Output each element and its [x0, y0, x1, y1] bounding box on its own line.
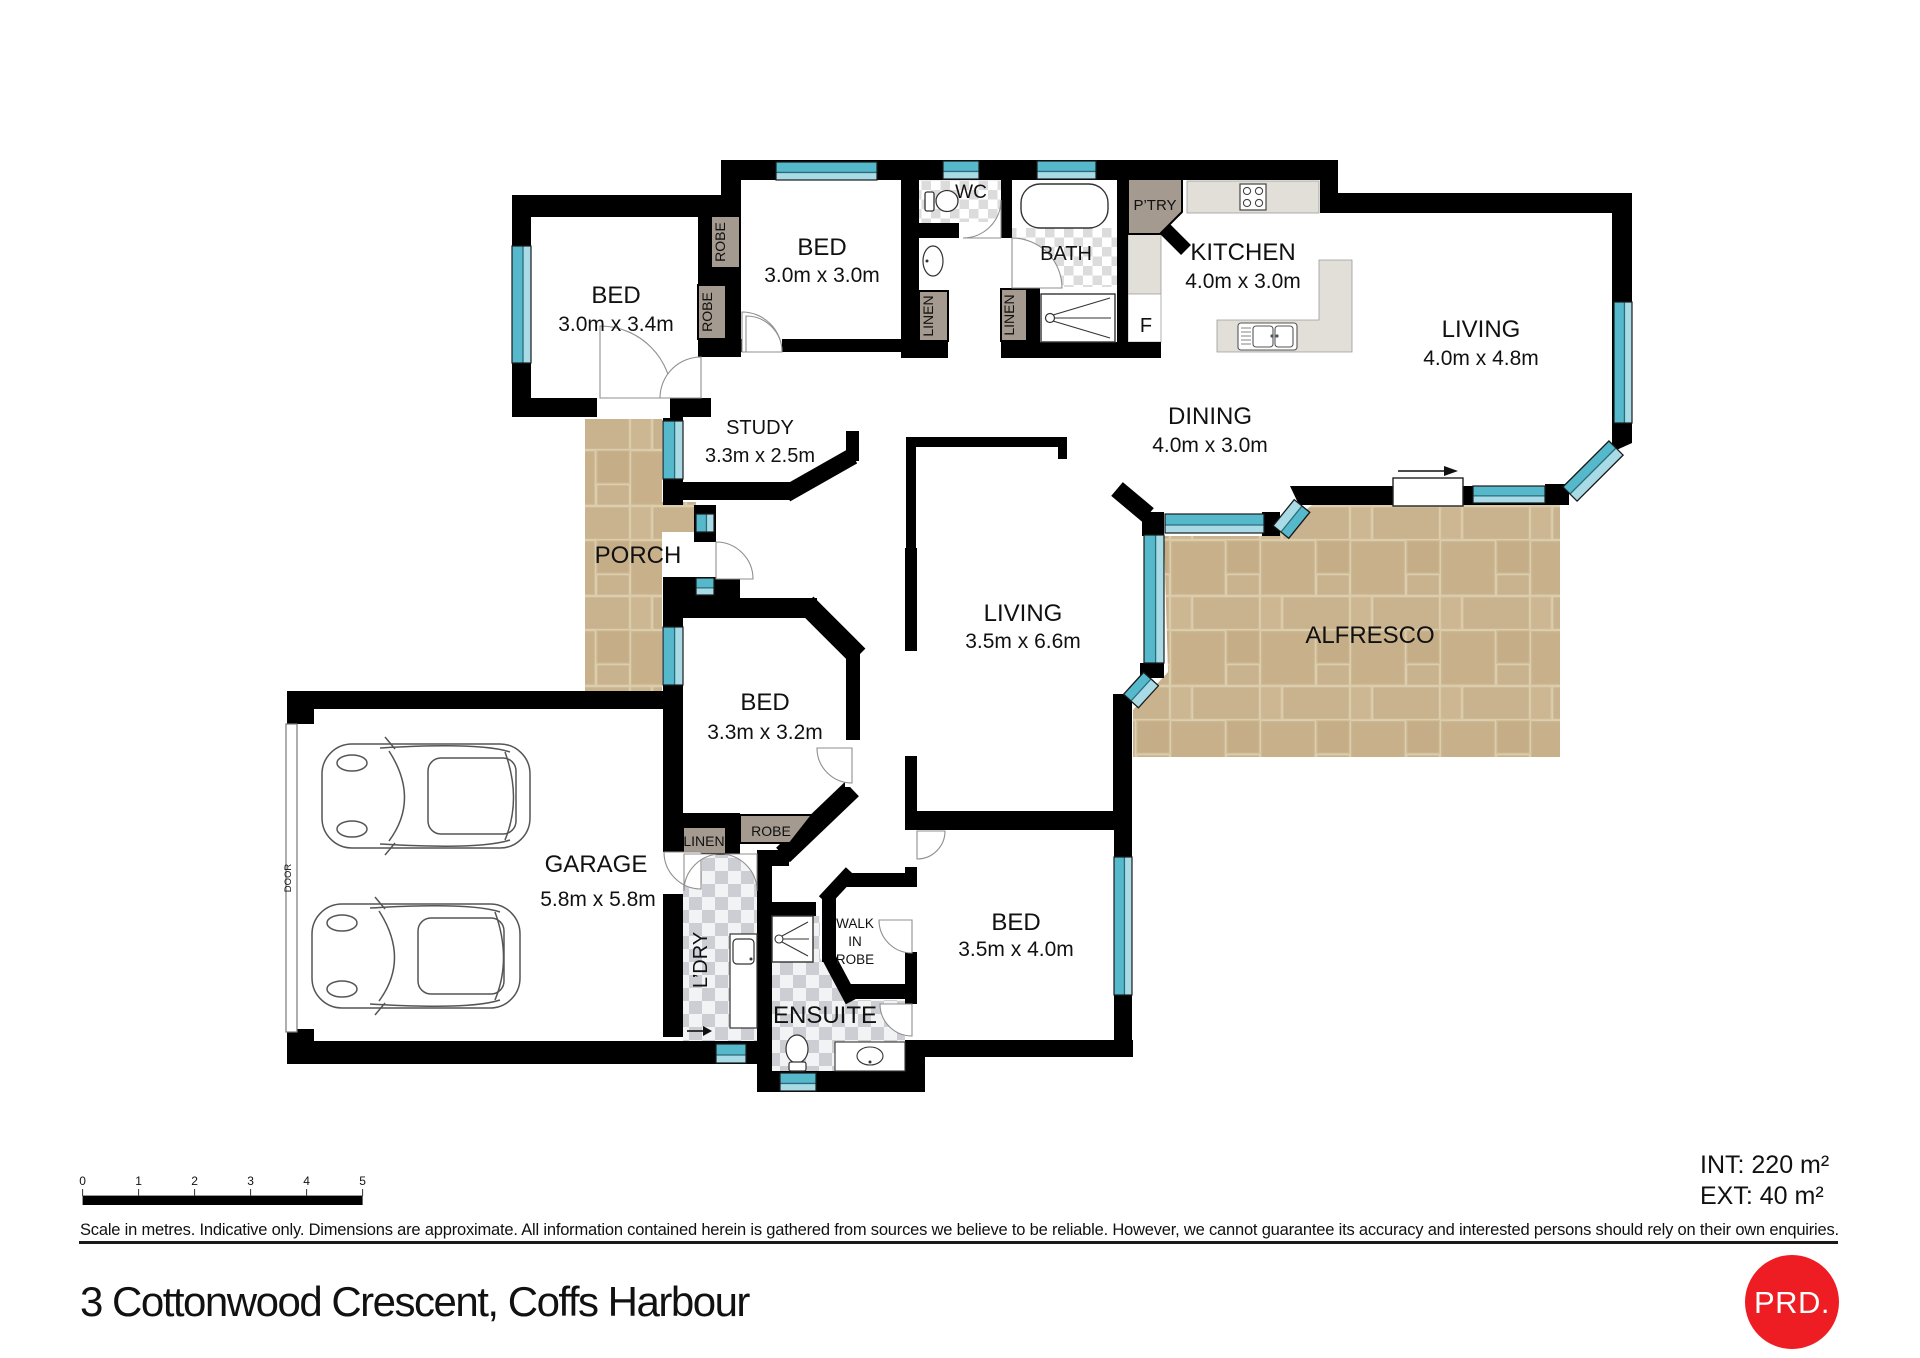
svg-text:3.5m x 4.0m: 3.5m x 4.0m — [958, 938, 1074, 961]
svg-text:DINING: DINING — [1168, 403, 1252, 430]
svg-text:WALK: WALK — [836, 916, 874, 931]
svg-text:IN: IN — [848, 934, 862, 949]
svg-text:5.8m x 5.8m: 5.8m x 5.8m — [540, 888, 656, 911]
svg-text:4.0m x 3.0m: 4.0m x 3.0m — [1152, 434, 1268, 457]
svg-text:ENSUITE: ENSUITE — [773, 1002, 877, 1029]
svg-text:GARAGE: GARAGE — [545, 851, 648, 878]
svg-text:3.5m x 6.6m: 3.5m x 6.6m — [965, 630, 1081, 653]
svg-text:3.0m x 3.4m: 3.0m x 3.4m — [558, 313, 674, 336]
svg-text:F: F — [1140, 315, 1152, 337]
svg-text:LIVING: LIVING — [1442, 316, 1521, 343]
svg-text:STUDY: STUDY — [726, 417, 794, 439]
svg-text:2: 2 — [191, 1174, 198, 1188]
svg-text:Scale in metres. Indicative on: Scale in metres. Indicative only. Dimens… — [80, 1221, 1839, 1239]
svg-text:4.0m x 4.8m: 4.0m x 4.8m — [1423, 347, 1539, 370]
svg-text:LINEN: LINEN — [1001, 294, 1017, 335]
svg-text:LIVING: LIVING — [984, 600, 1063, 627]
svg-text:ALFRESCO: ALFRESCO — [1305, 622, 1434, 649]
svg-text:DOOR: DOOR — [283, 864, 294, 893]
svg-text:BED: BED — [797, 234, 846, 261]
svg-text:BED: BED — [991, 909, 1040, 936]
svg-text:4: 4 — [303, 1174, 310, 1188]
svg-text:EXT: 40 m²: EXT: 40 m² — [1700, 1182, 1824, 1210]
svg-text:4.0m x 3.0m: 4.0m x 3.0m — [1185, 270, 1301, 293]
svg-text:INT: 220 m²: INT: 220 m² — [1700, 1151, 1829, 1179]
svg-text:5: 5 — [359, 1174, 366, 1188]
svg-text:3.3m x 3.2m: 3.3m x 3.2m — [707, 721, 823, 744]
svg-text:BED: BED — [591, 282, 640, 309]
svg-text:3: 3 — [247, 1174, 254, 1188]
svg-text:KITCHEN: KITCHEN — [1190, 239, 1295, 266]
svg-text:3.3m x 2.5m: 3.3m x 2.5m — [705, 445, 815, 467]
svg-text:WC: WC — [955, 182, 987, 203]
svg-text:ROBE: ROBE — [699, 292, 715, 332]
svg-text:BATH: BATH — [1040, 243, 1092, 265]
svg-text:LINEN: LINEN — [683, 833, 724, 849]
svg-text:0: 0 — [79, 1174, 86, 1188]
svg-text:3.0m x 3.0m: 3.0m x 3.0m — [764, 264, 880, 287]
svg-text:LINEN: LINEN — [920, 295, 936, 336]
svg-text:ROBE: ROBE — [836, 952, 874, 967]
svg-text:L’DRY: L’DRY — [690, 932, 712, 988]
svg-text:PORCH: PORCH — [595, 542, 682, 569]
svg-text:ROBE: ROBE — [712, 222, 728, 262]
svg-text:1: 1 — [135, 1174, 142, 1188]
svg-text:PRD.: PRD. — [1754, 1285, 1830, 1320]
svg-text:ROBE: ROBE — [751, 823, 791, 839]
svg-text:BED: BED — [740, 689, 789, 716]
svg-text:P’TRY: P’TRY — [1133, 197, 1176, 214]
svg-text:3 Cottonwood Crescent, Coffs H: 3 Cottonwood Crescent, Coffs Harbour — [80, 1278, 750, 1325]
